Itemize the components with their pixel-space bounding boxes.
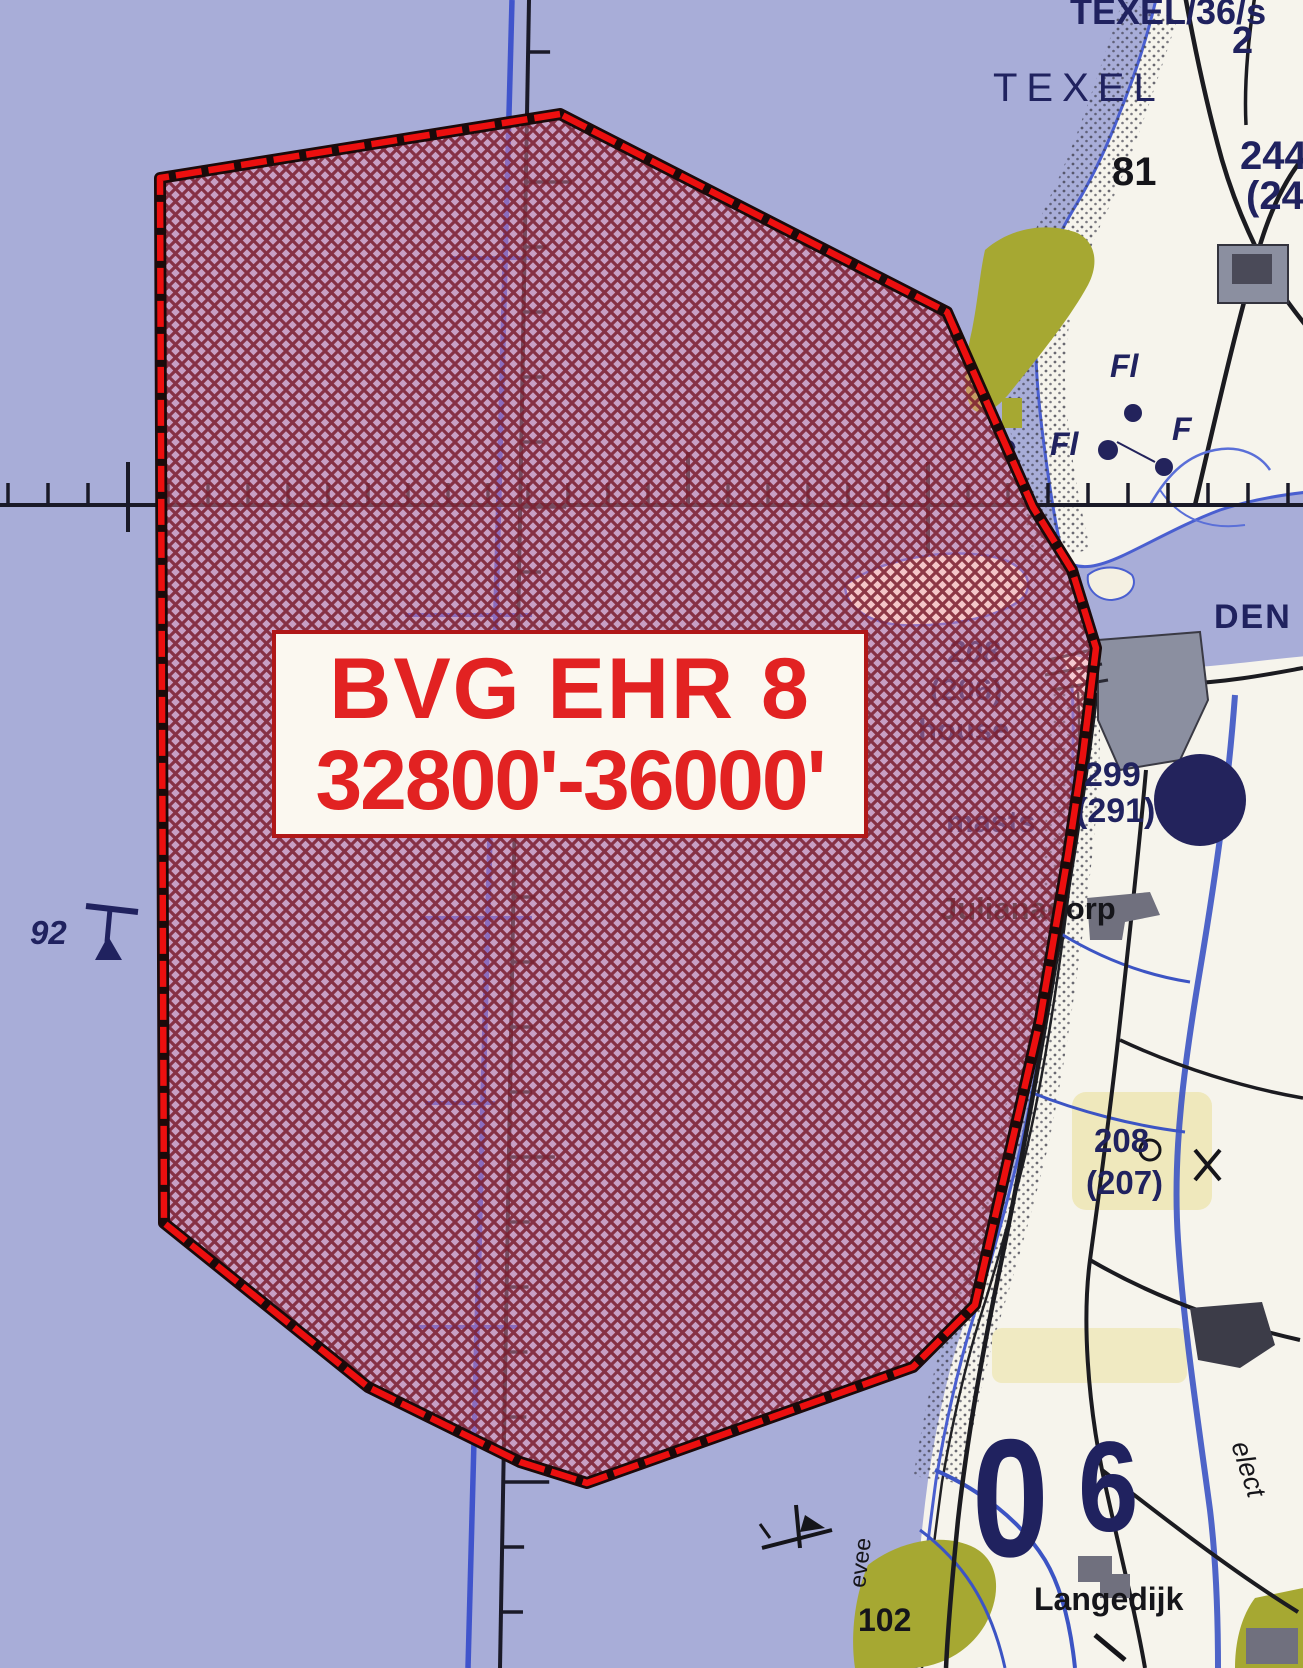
restricted-area-name: BVG EHR 8	[329, 646, 811, 732]
light-dot-3	[1155, 458, 1173, 476]
restricted-area-altitudes: 32800'-36000'	[315, 738, 824, 822]
texel-builtup-dark	[1232, 254, 1272, 284]
light-dot-4	[1001, 440, 1015, 454]
shoal-small	[1088, 568, 1134, 601]
restricted-area-label-box: BVG EHR 8 32800'-36000'	[272, 630, 868, 838]
texel-olive-small	[1002, 398, 1022, 428]
corner-builtup	[1246, 1628, 1298, 1664]
chart-map: TEXEL/36/sTEXEL281244(24FlFlFDEN208(206)…	[0, 0, 1303, 1668]
yellow-patch-1	[1072, 1092, 1212, 1210]
light-dot-2	[1098, 440, 1118, 460]
light-dot-1	[1124, 404, 1142, 422]
den-helder-circle-symbol	[1154, 754, 1246, 846]
langedijk-builtup-2	[1100, 1574, 1130, 1598]
